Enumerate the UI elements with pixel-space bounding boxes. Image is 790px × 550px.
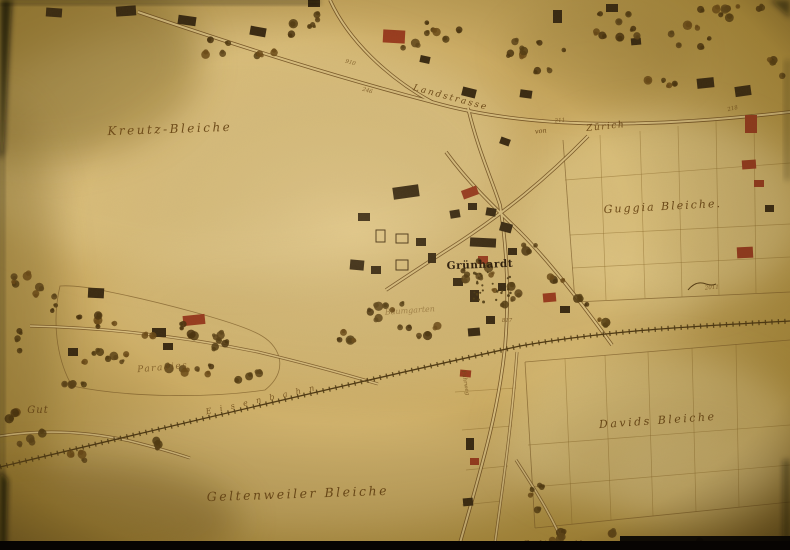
map-canvas: Kreutz-Bleiche Landstrasse von Zürich Gu… <box>0 0 790 550</box>
historical-map-photo: Kreutz-Bleiche Landstrasse von Zürich Gu… <box>0 0 790 550</box>
vignette-overlay <box>0 0 790 550</box>
